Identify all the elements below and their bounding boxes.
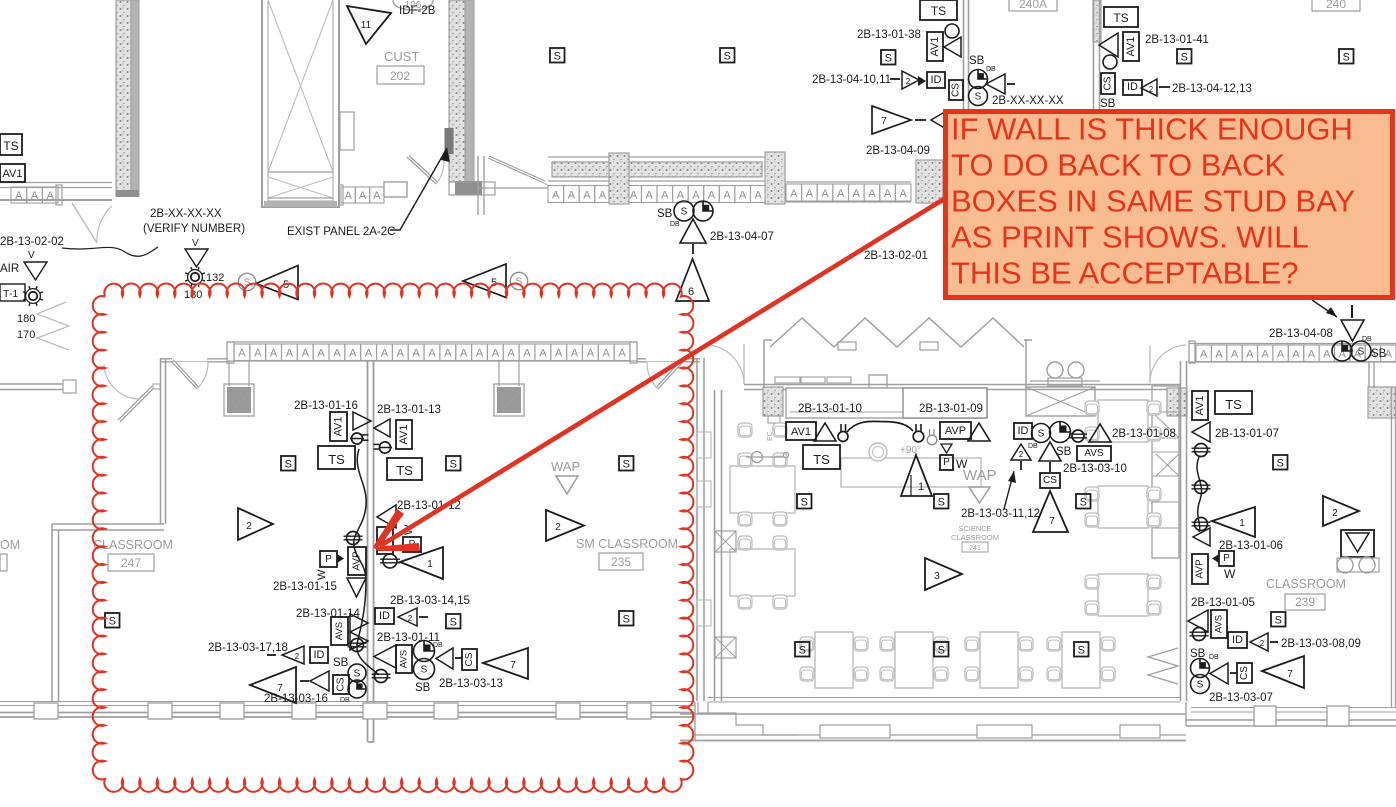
svg-text:THIS BE ACCEPTABLE?: THIS BE ACCEPTABLE? xyxy=(951,256,1298,291)
svg-text:2B-13-04-10,11: 2B-13-04-10,11 xyxy=(812,74,891,86)
svg-text:A: A xyxy=(1277,349,1285,361)
svg-text:2B-13-03-11,12: 2B-13-03-11,12 xyxy=(961,508,1040,520)
svg-text:2B-XX-XX-XX: 2B-XX-XX-XX xyxy=(992,95,1064,107)
svg-text:2B-13-01-15: 2B-13-01-15 xyxy=(273,581,337,593)
svg-text:AV1: AV1 xyxy=(3,168,23,180)
svg-text:S: S xyxy=(1078,644,1085,656)
svg-text:TS: TS xyxy=(396,463,413,478)
svg-text:SM CLASSROOM: SM CLASSROOM xyxy=(576,537,678,551)
svg-text:WAP: WAP xyxy=(551,459,580,474)
svg-text:A: A xyxy=(373,190,381,202)
svg-text:AVP: AVP xyxy=(1195,559,1206,579)
svg-text:A: A xyxy=(15,190,23,202)
svg-text:2B-13-01-41: 2B-13-01-41 xyxy=(1145,34,1209,46)
svg-text:A: A xyxy=(47,190,55,202)
svg-text:A: A xyxy=(646,190,654,202)
svg-text:A: A xyxy=(599,190,607,202)
svg-text:A: A xyxy=(381,348,389,360)
svg-text:2: 2 xyxy=(1149,85,1154,94)
svg-text:S: S xyxy=(450,458,457,470)
svg-text:A: A xyxy=(692,190,700,202)
svg-text:S: S xyxy=(450,616,457,628)
svg-text:2: 2 xyxy=(408,614,413,623)
svg-text:2B-13-01-05: 2B-13-01-05 xyxy=(1191,597,1255,609)
svg-text:S: S xyxy=(1358,347,1365,358)
svg-text:2B-13-03-10: 2B-13-03-10 xyxy=(1063,463,1127,475)
svg-text:DB: DB xyxy=(433,642,443,649)
svg-text:S: S xyxy=(975,92,982,103)
svg-text:AVP: AVP xyxy=(352,551,363,571)
svg-text:235: 235 xyxy=(611,555,631,569)
svg-text:240A: 240A xyxy=(1019,0,1047,11)
svg-text:7: 7 xyxy=(1287,669,1293,680)
svg-text:T-1: T-1 xyxy=(3,288,18,300)
svg-text:ID: ID xyxy=(379,610,390,622)
svg-text:A: A xyxy=(508,348,516,360)
svg-text:OM: OM xyxy=(0,538,20,552)
svg-text:TS: TS xyxy=(328,452,345,467)
svg-text:2B-13-04-09: 2B-13-04-09 xyxy=(866,145,930,157)
svg-text:EC: EC xyxy=(767,431,774,441)
svg-text:DB: DB xyxy=(340,697,350,704)
svg-text:A: A xyxy=(238,348,246,360)
svg-text:A: A xyxy=(1262,349,1270,361)
svg-text:DB: DB xyxy=(670,221,680,228)
svg-text:A: A xyxy=(630,190,638,202)
svg-text:A: A xyxy=(1215,349,1223,361)
svg-text:CS: CS xyxy=(464,652,475,666)
svg-text:CS: CS xyxy=(1043,475,1057,486)
svg-text:AV1: AV1 xyxy=(398,425,410,445)
svg-text:IDF-2B: IDF-2B xyxy=(399,5,436,17)
svg-text:A: A xyxy=(333,348,341,360)
svg-text:AV1: AV1 xyxy=(332,417,344,437)
svg-text:A: A xyxy=(661,190,669,202)
svg-text:A: A xyxy=(397,348,405,360)
svg-text:A: A xyxy=(317,348,325,360)
svg-text:SB: SB xyxy=(969,55,985,67)
svg-text:S: S xyxy=(109,615,116,627)
svg-text:2: 2 xyxy=(295,652,300,661)
svg-text:2B-13-04-07: 2B-13-04-07 xyxy=(710,231,774,243)
svg-text:S: S xyxy=(1343,51,1350,63)
svg-text:1: 1 xyxy=(918,481,924,493)
svg-text:V: V xyxy=(192,238,199,249)
svg-text:AVP: AVP xyxy=(945,425,966,437)
svg-text:6: 6 xyxy=(688,286,694,298)
svg-text:CLASSROOM: CLASSROOM xyxy=(1266,577,1346,591)
svg-text:SB: SB xyxy=(1056,446,1072,458)
svg-text:CLASSROOM: CLASSROOM xyxy=(951,533,999,542)
svg-text:3: 3 xyxy=(934,571,940,582)
svg-text:A: A xyxy=(571,348,579,360)
svg-text:S: S xyxy=(938,496,945,508)
svg-text:A: A xyxy=(603,348,611,360)
svg-text:A: A xyxy=(868,188,876,200)
svg-text:A: A xyxy=(837,188,845,200)
svg-text:A: A xyxy=(345,190,353,202)
svg-text:A: A xyxy=(428,348,436,360)
svg-text:2B-13-01-10: 2B-13-01-10 xyxy=(798,403,862,415)
svg-text:S: S xyxy=(1277,457,1284,469)
svg-text:ID: ID xyxy=(931,74,942,86)
svg-text:A: A xyxy=(755,190,763,202)
svg-text:AS PRINT SHOWS. WILL: AS PRINT SHOWS. WILL xyxy=(951,220,1309,255)
svg-text:A: A xyxy=(900,188,908,200)
svg-text:A: A xyxy=(677,190,685,202)
svg-text:A: A xyxy=(806,188,814,200)
svg-text:A: A xyxy=(1231,349,1239,361)
svg-text:P: P xyxy=(943,457,950,468)
svg-text:AV1: AV1 xyxy=(929,37,941,57)
svg-text:W: W xyxy=(956,457,968,471)
svg-text:180: 180 xyxy=(17,313,35,325)
svg-text:DB: DB xyxy=(1028,443,1038,450)
svg-text:2B-13-01-07: 2B-13-01-07 xyxy=(1215,428,1279,440)
svg-text:2B-13-03-13: 2B-13-03-13 xyxy=(439,678,503,690)
svg-text:2B-13-03-16: 2B-13-03-16 xyxy=(264,693,328,705)
svg-text:SB: SB xyxy=(1100,98,1116,110)
svg-text:CS: CS xyxy=(1239,666,1250,680)
svg-text:ID: ID xyxy=(1018,425,1029,437)
svg-text:A: A xyxy=(460,348,468,360)
svg-text:A: A xyxy=(790,188,798,200)
svg-text:A: A xyxy=(583,190,591,202)
svg-text:2B-13-04-12,13: 2B-13-04-12,13 xyxy=(1172,83,1252,95)
svg-text:A: A xyxy=(270,348,278,360)
svg-text:S: S xyxy=(421,665,428,676)
svg-text:S: S xyxy=(724,50,731,62)
svg-text:2: 2 xyxy=(1332,508,1338,519)
svg-text:A: A xyxy=(1200,349,1208,361)
svg-text:ID: ID xyxy=(1232,634,1243,646)
svg-text:247: 247 xyxy=(121,556,141,570)
svg-text:TS: TS xyxy=(3,139,18,153)
svg-text:2B-XX-XX-XX: 2B-XX-XX-XX xyxy=(150,208,222,220)
svg-text:A: A xyxy=(1292,349,1300,361)
svg-text:2B-13-02-02: 2B-13-02-02 xyxy=(0,236,64,248)
svg-text:2: 2 xyxy=(555,522,561,533)
svg-text:S: S xyxy=(801,496,808,508)
svg-text:A: A xyxy=(723,190,731,202)
svg-text:A: A xyxy=(492,348,500,360)
svg-text:S: S xyxy=(1275,614,1282,626)
svg-text:A: A xyxy=(539,348,547,360)
svg-text:2B-13-04-08: 2B-13-04-08 xyxy=(1269,328,1333,340)
svg-text:S: S xyxy=(938,644,945,656)
svg-text:A: A xyxy=(444,348,452,360)
svg-text:A: A xyxy=(286,348,294,360)
svg-text:AVS: AVS xyxy=(1214,615,1225,633)
svg-text:S: S xyxy=(681,207,688,218)
svg-text:A: A xyxy=(359,190,367,202)
svg-text:AVS: AVS xyxy=(334,622,345,640)
svg-text:TO DO BACK TO BACK: TO DO BACK TO BACK xyxy=(951,148,1286,183)
svg-text:P: P xyxy=(1223,553,1230,564)
svg-text:AV1: AV1 xyxy=(791,426,811,438)
svg-text:SB: SB xyxy=(415,682,431,694)
svg-text:V: V xyxy=(28,250,35,261)
svg-text:2B-13-01-16: 2B-13-01-16 xyxy=(294,400,358,412)
svg-text:DB: DB xyxy=(1209,654,1219,661)
svg-text:2: 2 xyxy=(1260,639,1265,648)
svg-text:EXIST PANEL 2A-2C: EXIST PANEL 2A-2C xyxy=(287,226,395,238)
svg-text:AV1: AV1 xyxy=(1125,37,1137,57)
svg-text:11: 11 xyxy=(361,20,372,31)
svg-text:2B-13-01-38: 2B-13-01-38 xyxy=(857,29,921,41)
svg-text:W: W xyxy=(1224,567,1236,581)
svg-text:AVS: AVS xyxy=(399,650,410,668)
svg-text:A: A xyxy=(552,190,560,202)
svg-text:2B-13-01-09: 2B-13-01-09 xyxy=(919,403,983,415)
svg-text:CS: CS xyxy=(1103,76,1114,90)
svg-text:S: S xyxy=(623,458,630,470)
svg-text:A: A xyxy=(1308,349,1316,361)
svg-text:239: 239 xyxy=(1295,595,1315,609)
svg-text:7: 7 xyxy=(881,116,887,127)
svg-text:S: S xyxy=(1181,51,1188,63)
svg-text:S: S xyxy=(554,50,561,62)
svg-text:241: 241 xyxy=(969,545,981,552)
svg-text:A: A xyxy=(555,348,563,360)
svg-text:ID: ID xyxy=(314,649,325,661)
svg-text:AV1: AV1 xyxy=(1194,396,1206,416)
svg-text:A: A xyxy=(413,348,421,360)
svg-text:A: A xyxy=(587,348,595,360)
svg-text:A: A xyxy=(523,348,531,360)
svg-text:TS: TS xyxy=(1225,397,1242,412)
svg-text:1: 1 xyxy=(427,559,433,570)
svg-text:A: A xyxy=(365,348,373,360)
svg-text:202: 202 xyxy=(390,69,410,83)
svg-text:A: A xyxy=(476,348,484,360)
svg-text:S: S xyxy=(1038,429,1045,440)
svg-text:A: A xyxy=(618,348,626,360)
svg-text:CUST: CUST xyxy=(384,49,419,64)
svg-text:S: S xyxy=(1197,680,1204,691)
svg-text:A: A xyxy=(568,190,576,202)
svg-text:CS: CS xyxy=(336,677,347,691)
svg-text:WAP: WAP xyxy=(963,467,997,484)
svg-text:2B-13-03-08,09: 2B-13-03-08,09 xyxy=(1281,638,1361,650)
svg-text:170: 170 xyxy=(17,329,35,341)
svg-text:2B-13-02-01: 2B-13-02-01 xyxy=(864,250,928,262)
svg-text:DB: DB xyxy=(986,66,996,73)
svg-text:TS: TS xyxy=(1113,11,1128,25)
svg-text:CS: CS xyxy=(951,83,962,97)
svg-text:S: S xyxy=(799,644,806,656)
svg-text:A: A xyxy=(254,348,262,360)
svg-text:A: A xyxy=(821,188,829,200)
svg-text:S: S xyxy=(885,52,892,64)
svg-text:S: S xyxy=(623,613,630,625)
svg-text:S: S xyxy=(285,458,292,470)
svg-text:IF WALL IS THICK ENOUGH: IF WALL IS THICK ENOUGH xyxy=(951,112,1353,147)
svg-text:2: 2 xyxy=(246,521,252,532)
svg-text:A: A xyxy=(31,190,39,202)
svg-text:A: A xyxy=(884,188,892,200)
svg-text:2B-13-03-07: 2B-13-03-07 xyxy=(1209,692,1273,704)
svg-text:TS: TS xyxy=(813,452,830,467)
svg-text:SB: SB xyxy=(333,657,349,669)
svg-text:A: A xyxy=(853,188,861,200)
svg-text:2: 2 xyxy=(906,77,911,86)
svg-text:A: A xyxy=(302,348,310,360)
svg-text:BOXES IN SAME STUD BAY: BOXES IN SAME STUD BAY xyxy=(951,184,1355,219)
svg-text:W: W xyxy=(316,569,328,580)
svg-text:+90°: +90° xyxy=(900,445,921,456)
svg-text:2B-13-01-08: 2B-13-01-08 xyxy=(1112,428,1176,440)
svg-text:2: 2 xyxy=(1019,450,1024,459)
svg-text:S: S xyxy=(354,669,361,680)
svg-text:(VERIFY NUMBER): (VERIFY NUMBER) xyxy=(143,223,245,235)
svg-text:SB: SB xyxy=(657,208,673,220)
svg-text:AVS: AVS xyxy=(1084,448,1104,459)
svg-text:TS: TS xyxy=(931,4,946,18)
svg-text:ID: ID xyxy=(1127,81,1138,93)
svg-text:7: 7 xyxy=(1049,516,1055,527)
svg-text:240: 240 xyxy=(1326,0,1346,11)
svg-text:A: A xyxy=(708,190,716,202)
svg-text:CLASSROOM: CLASSROOM xyxy=(93,538,173,552)
svg-text:A: A xyxy=(349,348,357,360)
svg-text:1: 1 xyxy=(1239,518,1245,529)
svg-text:132: 132 xyxy=(206,272,224,284)
svg-text:P: P xyxy=(325,554,332,565)
svg-text:SB: SB xyxy=(1371,348,1387,360)
svg-text:AIR: AIR xyxy=(0,263,19,275)
svg-text:A: A xyxy=(1323,349,1331,361)
svg-text:2B-13-03-17,18: 2B-13-03-17,18 xyxy=(208,642,288,654)
svg-text:2B-13-03-14,15: 2B-13-03-14,15 xyxy=(390,595,470,607)
svg-text:A: A xyxy=(1246,349,1254,361)
svg-text:7: 7 xyxy=(510,660,516,671)
svg-text:A: A xyxy=(739,190,747,202)
svg-text:S: S xyxy=(1080,496,1087,508)
svg-text:SCIENCE: SCIENCE xyxy=(958,524,991,533)
svg-text:2B-13-01-13: 2B-13-01-13 xyxy=(377,404,441,416)
